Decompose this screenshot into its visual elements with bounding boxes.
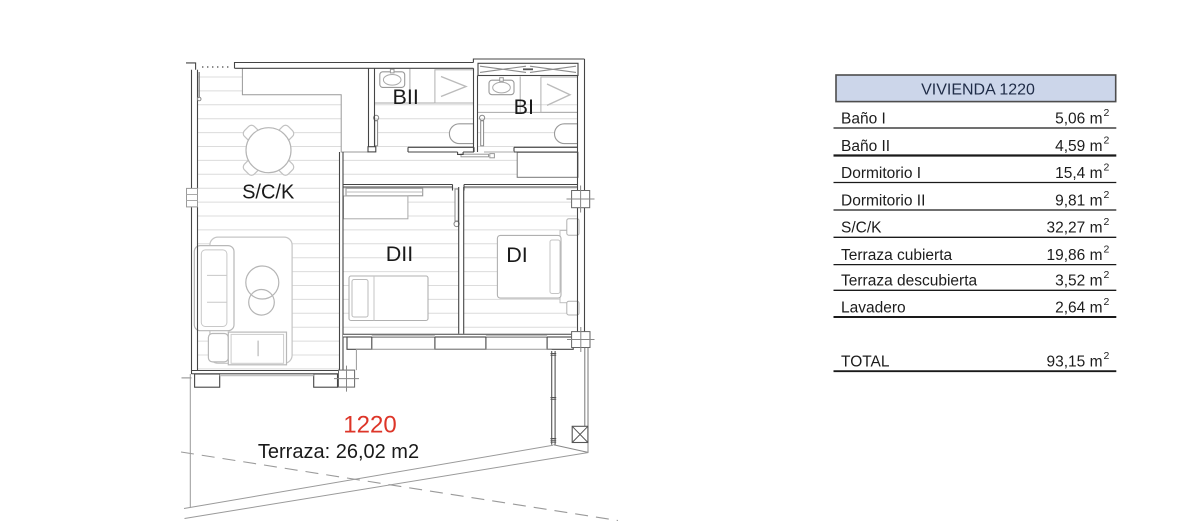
svg-text:3,52 m: 3,52 m — [1055, 273, 1102, 290]
svg-text:S/C/K: S/C/K — [242, 181, 295, 203]
svg-text:19,86 m: 19,86 m — [1046, 247, 1102, 264]
svg-text:DI: DI — [506, 243, 528, 267]
svg-text:TOTAL: TOTAL — [841, 354, 890, 371]
svg-text:Dormitorio I: Dormitorio I — [841, 165, 921, 182]
svg-text:2: 2 — [1104, 269, 1110, 281]
svg-text:Terraza: 26,02 m2: Terraza: 26,02 m2 — [258, 441, 419, 463]
svg-text:2: 2 — [1104, 350, 1110, 362]
svg-text:DII: DII — [386, 242, 413, 266]
svg-text:4,59 m: 4,59 m — [1055, 138, 1102, 155]
svg-text:2: 2 — [1104, 134, 1110, 146]
svg-text:Terraza descubierta: Terraza descubierta — [841, 273, 978, 290]
svg-text:9,81 m: 9,81 m — [1055, 192, 1102, 209]
svg-text:BII: BII — [393, 85, 419, 109]
svg-text:2,64 m: 2,64 m — [1055, 299, 1102, 316]
svg-text:15,4 m: 15,4 m — [1055, 165, 1102, 182]
svg-text:Baño I: Baño I — [841, 110, 886, 127]
svg-text:5,06 m: 5,06 m — [1055, 110, 1102, 127]
svg-text:BI: BI — [514, 95, 534, 119]
svg-text:32,27 m: 32,27 m — [1046, 220, 1102, 237]
svg-text:2: 2 — [1104, 296, 1110, 308]
svg-text:93,15 m: 93,15 m — [1046, 354, 1102, 371]
svg-text:2: 2 — [1104, 244, 1110, 256]
svg-text:Lavadero: Lavadero — [841, 299, 906, 316]
svg-text:Baño II: Baño II — [841, 138, 890, 155]
svg-text:2: 2 — [1104, 216, 1110, 228]
svg-text:S/C/K: S/C/K — [841, 220, 882, 237]
svg-text:2: 2 — [1104, 189, 1110, 201]
svg-text:1220: 1220 — [343, 411, 396, 438]
svg-text:VIVIENDA 1220: VIVIENDA 1220 — [921, 82, 1035, 99]
svg-text:Terraza cubierta: Terraza cubierta — [841, 247, 953, 264]
svg-text:2: 2 — [1104, 107, 1110, 119]
svg-text:Dormitorio II: Dormitorio II — [841, 192, 925, 209]
svg-text:2: 2 — [1104, 161, 1110, 173]
